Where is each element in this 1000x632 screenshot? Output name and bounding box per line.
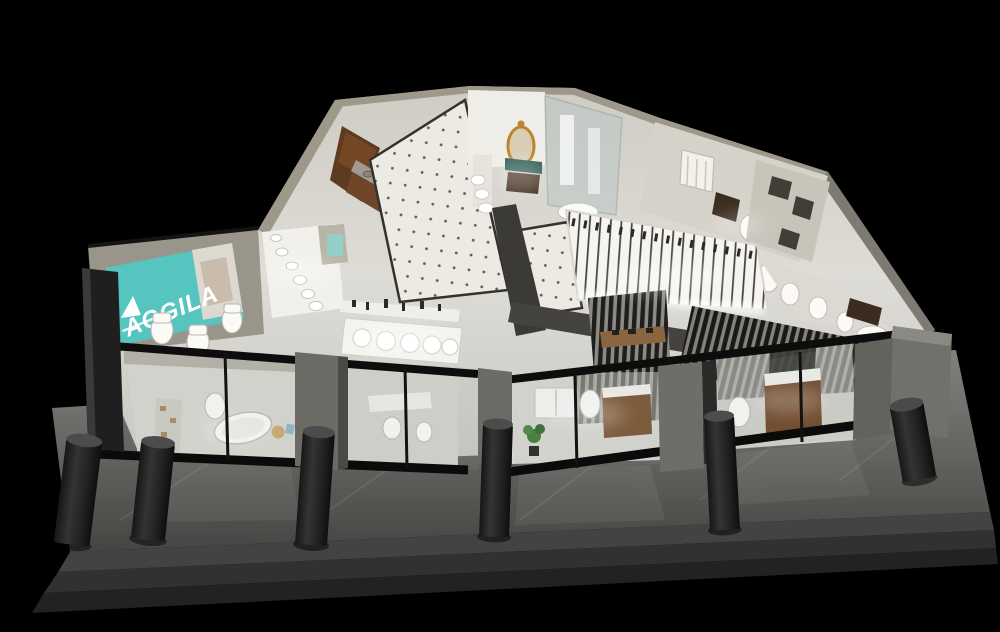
- glass-shower-room: [545, 96, 622, 221]
- showroom-render: AGGILA: [0, 0, 1000, 632]
- render-canvas: AGGILA: [0, 0, 1000, 632]
- bollard: [477, 418, 515, 543]
